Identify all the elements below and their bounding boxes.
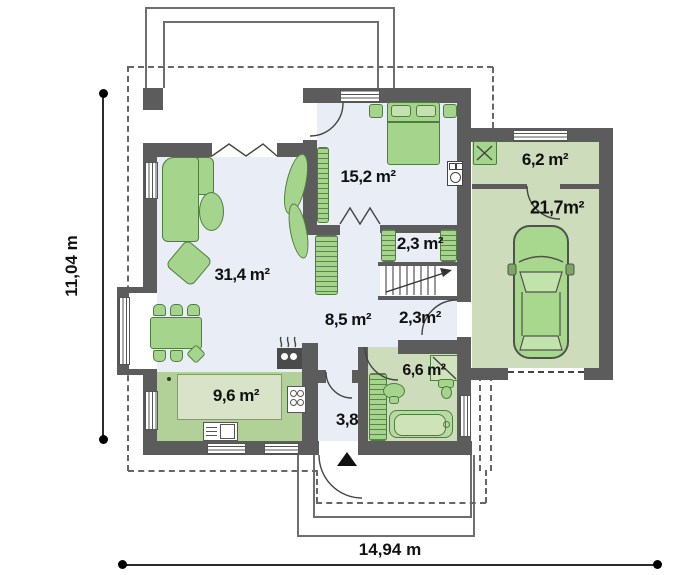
vestibule-top-wall-left [318, 370, 326, 383]
cooktop-burner [297, 390, 304, 397]
garage-door-dashed [508, 371, 584, 373]
utility-garage-divider-right [560, 184, 599, 189]
terrace-wall-stub [143, 88, 163, 110]
garage-bottom-pillar-left [458, 368, 508, 380]
height-dimension-label: 11,04 m [62, 231, 82, 301]
bottom-wall-right [362, 441, 472, 455]
living-window-upper [144, 162, 158, 199]
boiler [473, 141, 497, 165]
dining-chair [153, 304, 166, 316]
roof-overhang-top [128, 66, 493, 68]
stairs-top-edge [378, 262, 457, 266]
kitchen-window-bottom-1 [207, 443, 246, 455]
living-room-label: 31,4 m² [214, 265, 269, 285]
hall-corner-wall [303, 225, 340, 235]
terrace-outer-right [393, 7, 395, 90]
coffee-table [199, 192, 224, 231]
dimension-dot [99, 89, 108, 98]
bed-pillow [391, 105, 411, 117]
bay-window-bottom [117, 369, 143, 375]
cooktop-burner [290, 390, 297, 397]
roof-overhang-right-top [492, 67, 494, 128]
porch-overhang-bottom [316, 502, 486, 504]
roof-overhang-left [127, 66, 129, 471]
bathtub-drain [443, 421, 450, 428]
washbasin-pedestal [389, 396, 399, 404]
vestibule-wardrobe [369, 373, 387, 441]
chimney-flue [456, 163, 463, 170]
roof-overhang-bottom-left [128, 470, 318, 472]
terrace-inner-top [163, 21, 379, 23]
stove-burner [290, 353, 297, 360]
vestibule-top-wall-right [352, 370, 358, 383]
dining-chair [170, 304, 183, 316]
height-dimension-line [102, 93, 104, 440]
right-interior-wall-upper [457, 88, 471, 302]
vestibule-bathroom-wall [358, 347, 368, 455]
driveway-edge-right [490, 375, 492, 471]
stairs-area [380, 265, 457, 298]
bathroom-window [459, 395, 471, 437]
dimension-dot [99, 435, 108, 444]
stove-burner [281, 353, 288, 360]
porch-inner-step [313, 455, 472, 518]
cooktop-burner [290, 399, 297, 406]
kitchen-window-left [144, 391, 158, 430]
chimney-vent [450, 172, 461, 183]
bathtub-inner [394, 414, 446, 436]
chimney-flue [449, 163, 456, 170]
corner-sofa-arm [162, 157, 199, 242]
corridor-label: 2,3m² [399, 308, 441, 328]
dining-chair [187, 304, 200, 316]
right-exterior-wall [599, 128, 613, 380]
dining-chair [153, 350, 166, 362]
counter-dot [167, 377, 171, 381]
porch-overhang-right [485, 470, 487, 503]
bed-pillow [416, 105, 436, 117]
cooktop-burner [297, 399, 304, 406]
vestibule-label: 3,8 [336, 410, 358, 430]
bay-window [118, 297, 130, 365]
nightstand [369, 104, 383, 118]
kitchen-sink-basin [220, 424, 235, 439]
bedroom-window [340, 90, 380, 103]
garage-label: 21,7m² [530, 198, 584, 219]
dimension-dot [653, 560, 662, 569]
driveway-edge-left [479, 375, 481, 471]
kitchen-window-bottom-2 [264, 443, 299, 455]
width-dimension-line [122, 564, 658, 566]
terrace-inner-left [163, 21, 165, 88]
dining-chair [170, 350, 183, 362]
bedroom-top-wall [303, 88, 470, 103]
toilet-bowl [441, 386, 452, 399]
hall-wardrobe [315, 235, 338, 295]
utility-window [513, 130, 568, 142]
corridor-bathroom-wall [398, 340, 457, 354]
bedroom-label: 15,2 m² [340, 167, 395, 187]
closet-label: 2,3 m² [397, 234, 443, 254]
folding-door-terrace [212, 144, 277, 156]
garage-bottom-pillar-right [584, 368, 613, 380]
hall-label: 8,5 m² [325, 310, 371, 330]
terrace-inner-right [377, 21, 379, 88]
width-dimension-label: 14,94 m [359, 540, 421, 560]
stairs-bottom-edge [378, 296, 457, 300]
dimension-dot [118, 560, 127, 569]
kitchen-label: 9,6 m² [213, 386, 259, 406]
terrace-outer-left [145, 7, 147, 88]
bathroom-label: 6,6 m² [402, 362, 445, 380]
closet-wardrobe-left [381, 229, 396, 262]
bed-blanket-line [388, 121, 439, 123]
nightstand [443, 104, 457, 118]
porch-overhang-left [316, 470, 318, 503]
bedroom-wardrobe [317, 147, 329, 223]
utility-garage-divider-left [472, 184, 527, 189]
terrace-outer-top [145, 7, 395, 9]
floor-plan: 31,4 m² 15,2 m² 2,3 m² 8,5 m² 2,3m² 6,6 … [0, 0, 700, 575]
utility-room-label: 6,2 m² [522, 150, 568, 170]
kitchen-sink-drainer [206, 425, 217, 436]
